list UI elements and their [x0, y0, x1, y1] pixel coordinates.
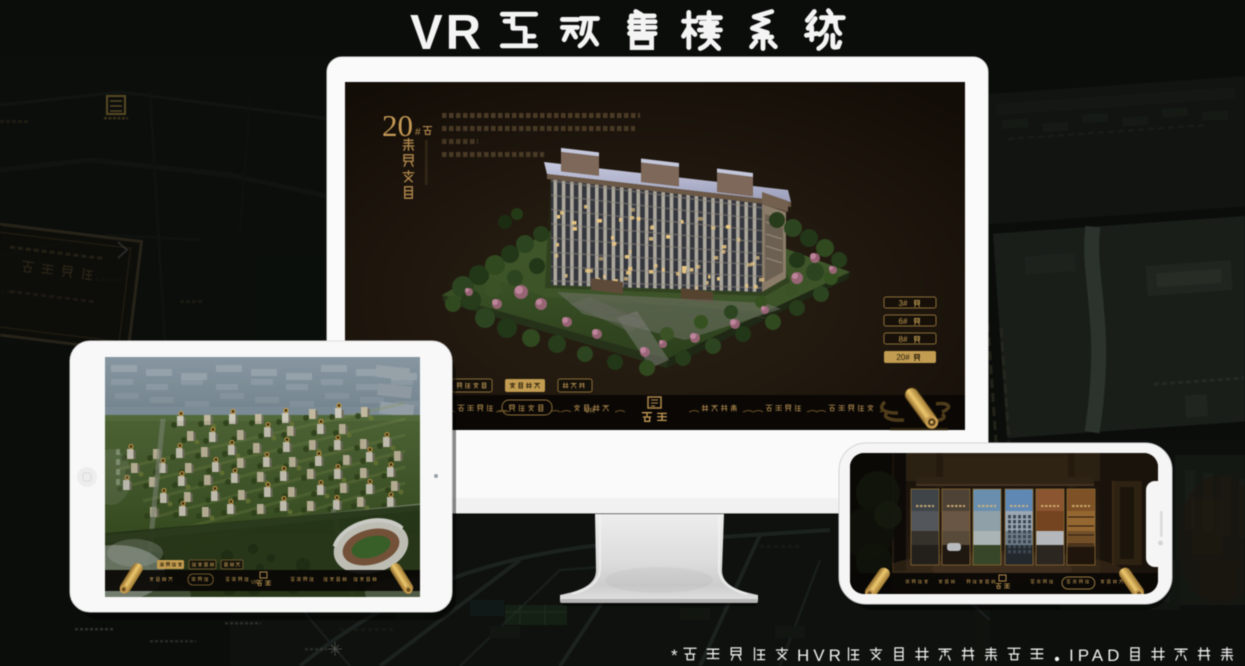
svg-text:8#: 8#: [899, 335, 908, 344]
svg-text:*: *: [671, 646, 678, 665]
svg-text:6#: 6#: [899, 317, 908, 326]
svg-text:VR: VR: [585, 408, 595, 415]
svg-text:VR: VR: [410, 6, 484, 60]
svg-text:#: #: [415, 127, 421, 138]
svg-text:3#: 3#: [899, 299, 908, 308]
svg-text:IPAD: IPAD: [1069, 646, 1123, 665]
svg-text:HVR: HVR: [797, 646, 845, 665]
svg-text:20: 20: [382, 108, 413, 143]
svg-text:20#: 20#: [896, 353, 910, 362]
